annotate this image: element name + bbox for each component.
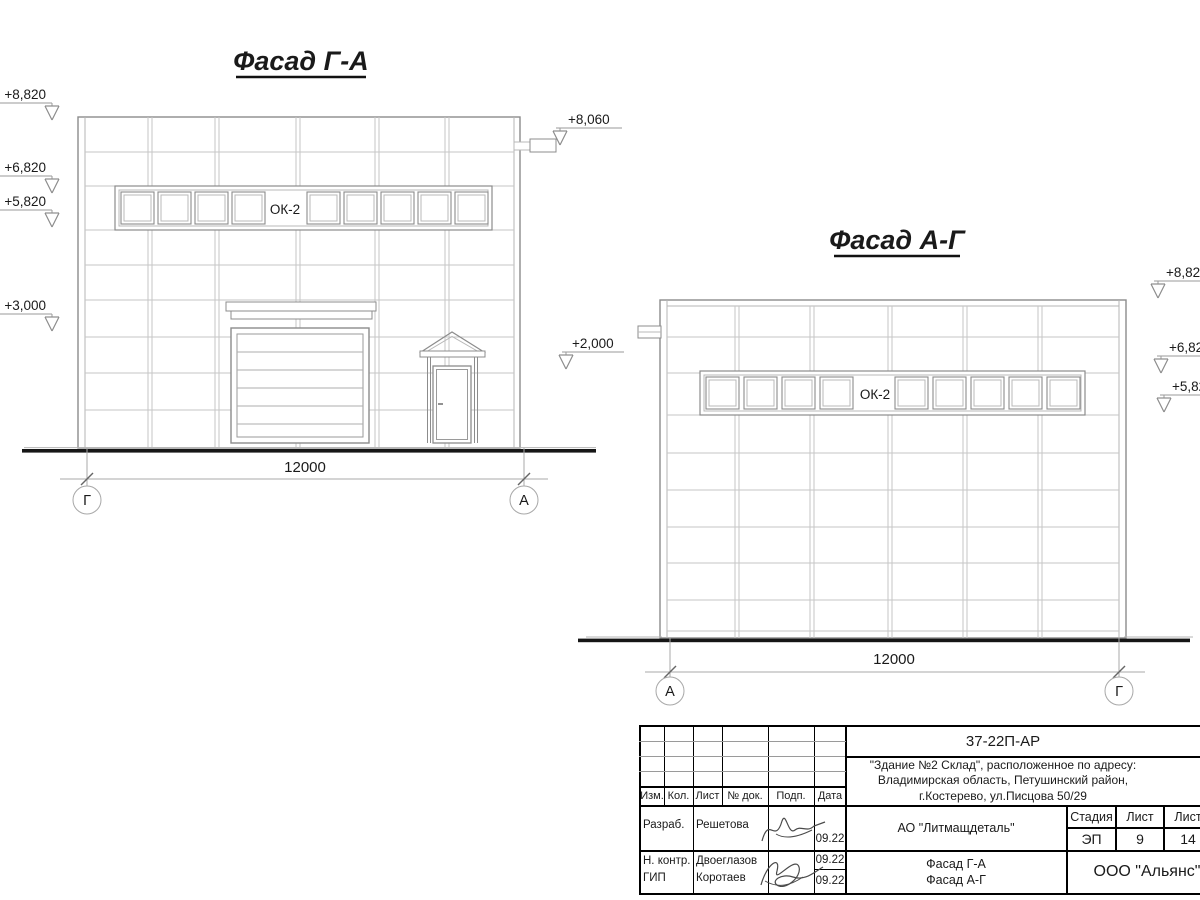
facade-ga-axis-right: А — [519, 493, 529, 509]
sheet-title: Фасад Г-А Фасад А-Г — [846, 851, 1066, 893]
stamp-border-left — [639, 725, 641, 895]
col-header-podp: Подп. — [768, 787, 814, 805]
window-pane — [381, 192, 414, 224]
elevation-label: +6,820 — [4, 160, 46, 175]
window-pane — [232, 192, 265, 224]
window-pane — [418, 192, 451, 224]
window-pane — [706, 377, 739, 409]
window-pane — [344, 192, 377, 224]
sheet-value: 9 — [1117, 827, 1163, 850]
elevation-arrow-icon — [1154, 359, 1168, 373]
project-address-line1: "Здание №2 Склад", расположенное по адре… — [870, 758, 1137, 774]
facade-ag-scupper — [638, 326, 661, 338]
sheets-value: 14 — [1165, 827, 1200, 850]
elevation-label: +5,820 — [4, 194, 46, 209]
window-pane — [121, 192, 154, 224]
roof-scupper — [530, 139, 556, 152]
window-pane — [1009, 377, 1042, 409]
elevation-arrow-icon — [1151, 284, 1165, 298]
signature-gip — [751, 851, 831, 893]
window-pane — [782, 377, 815, 409]
gate-canopy — [226, 302, 376, 311]
facade-ag-wall — [660, 300, 1126, 638]
row-role-gip: ГИП — [643, 870, 695, 886]
drawing-sheet: Фасад Г-А — [0, 0, 1200, 900]
facade-ga-dimension-text: 12000 — [284, 459, 326, 476]
facade-ga-axis-left: Г — [83, 493, 91, 509]
facade-ga-dimension: 12000 Г А — [60, 448, 548, 514]
col-header-list: Лист — [693, 787, 722, 805]
col-header-kol: Кол. — [664, 787, 693, 805]
window-pane — [895, 377, 928, 409]
elevation-arrow-icon — [45, 213, 59, 227]
elevation-label: +2,000 — [572, 336, 614, 351]
facade-ag: Фасад А-Г — [578, 225, 1200, 705]
sheets-label: Лист — [1165, 806, 1200, 827]
facade-ag-dimension: 12000 А Г — [645, 638, 1145, 705]
facade-ag-elevation-marks: +8,820 +6,820 +5,820 — [1151, 265, 1200, 412]
col-header-izm: Изм. — [640, 787, 664, 805]
facade-ag-window-label: ОК-2 — [860, 387, 890, 402]
organization-name: ООО "Альянс" — [1068, 851, 1200, 893]
window-pane — [971, 377, 1004, 409]
row-role-nkontr: Н. контр. — [643, 853, 695, 869]
facade-ga: Фасад Г-А — [0, 46, 624, 514]
row-role-razrab: Разраб. — [643, 819, 693, 849]
window-pane — [455, 192, 488, 224]
elevation-label: +8,060 — [568, 112, 610, 127]
facade-ag-axis-right: Г — [1115, 684, 1123, 700]
facade-ga-window-band: ОК-2 — [115, 186, 492, 230]
client-name: АО "Литмащдеталь" — [846, 806, 1066, 850]
facade-ag-title: Фасад А-Г — [829, 225, 966, 255]
elevation-arrow-icon — [45, 317, 59, 331]
window-pane — [744, 377, 777, 409]
facade-ag-window-band: ОК-2 — [700, 371, 1085, 415]
elevation-label: +6,820 — [1169, 340, 1200, 355]
window-pane — [1047, 377, 1080, 409]
facade-ga-title: Фасад Г-А — [233, 46, 368, 76]
elevation-arrow-icon — [45, 106, 59, 120]
project-address-line2: Владимирская область, Петушинский район, — [878, 773, 1128, 789]
project-address: "Здание №2 Склад", расположенное по адре… — [846, 757, 1160, 805]
col-header-ndoc: № док. — [722, 787, 768, 805]
signature-razrab — [754, 807, 829, 850]
gate-canopy-lower — [231, 311, 372, 319]
project-address-line3: г.Костерево, ул.Писцова 50/29 — [919, 789, 1087, 805]
sheet-label: Лист — [1117, 806, 1163, 827]
elevation-label: +8,820 — [1166, 265, 1200, 280]
elevation-arrow-icon — [559, 355, 573, 369]
title-block: Изм. Кол. Лист № док. Подп. Дата Разраб.… — [639, 725, 1200, 895]
stage-label: Стадия — [1068, 806, 1115, 827]
window-pane — [158, 192, 191, 224]
facade-ag-dimension-text: 12000 — [873, 651, 915, 668]
elevation-label: +3,000 — [4, 298, 46, 313]
window-pane — [307, 192, 340, 224]
window-pane — [933, 377, 966, 409]
window-pane — [820, 377, 853, 409]
window-pane — [195, 192, 228, 224]
roof-scupper — [514, 142, 532, 150]
doc-number: 37-22П-АР — [846, 727, 1160, 756]
col-header-data: Дата — [814, 787, 846, 805]
elevation-arrow-icon — [45, 179, 59, 193]
facade-ga-window-label: ОК-2 — [270, 202, 300, 217]
sheet-title-line1: Фасад Г-А — [926, 856, 986, 872]
stage-value: ЭП — [1068, 827, 1115, 850]
sheet-title-line2: Фасад А-Г — [926, 872, 986, 888]
elevation-label: +8,820 — [4, 87, 46, 102]
facade-ag-axis-left: А — [665, 684, 675, 700]
stamp-border-bottom — [639, 893, 1200, 895]
elevation-arrow-icon — [1157, 398, 1171, 412]
elevation-label: +5,820 — [1172, 379, 1200, 394]
